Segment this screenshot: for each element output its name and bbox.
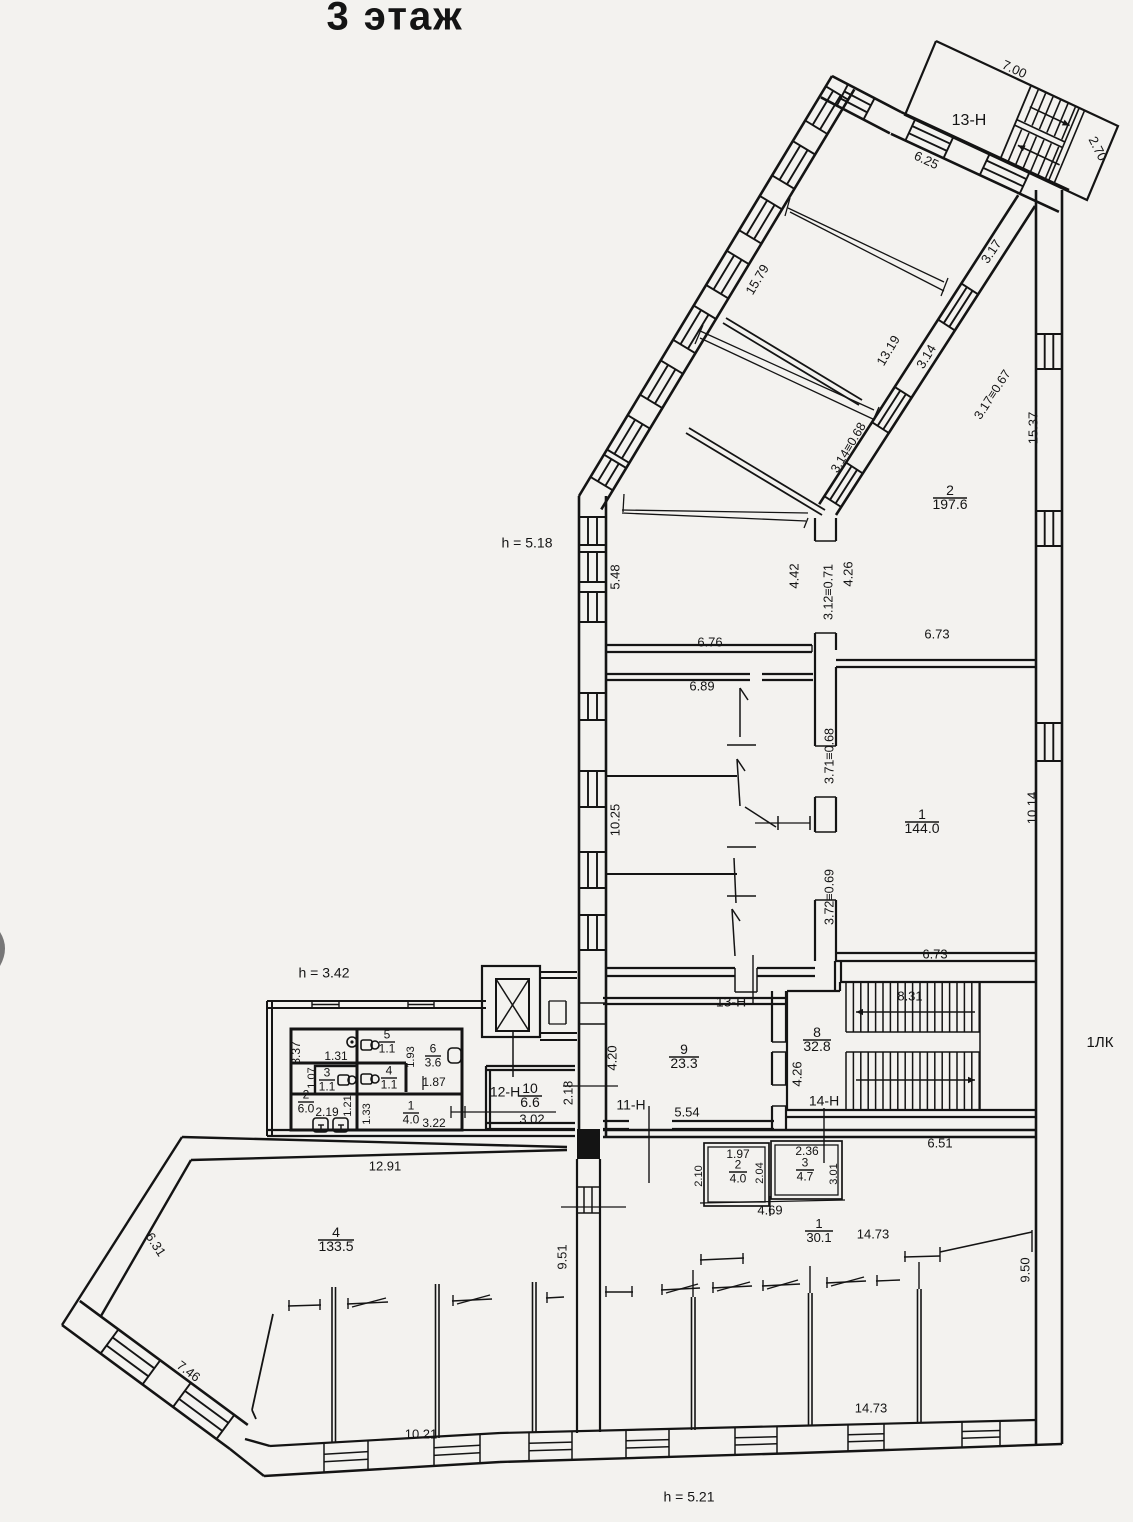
svg-text:4.0: 4.0 [403,1113,420,1127]
svg-text:10.21: 10.21 [405,1426,438,1441]
svg-text:4.20: 4.20 [604,1045,619,1070]
svg-text:12.91: 12.91 [369,1158,402,1173]
svg-text:12-Н: 12-Н [490,1084,520,1100]
svg-text:2.19: 2.19 [315,1105,339,1119]
svg-text:133.5: 133.5 [318,1238,353,1254]
svg-text:1.07: 1.07 [306,1067,318,1088]
svg-text:3.17≡0.67: 3.17≡0.67 [971,367,1013,422]
svg-text:3.14≡0.68: 3.14≡0.68 [828,420,869,475]
svg-text:4.7: 4.7 [797,1170,814,1184]
svg-text:1.87: 1.87 [422,1075,446,1089]
svg-text:2: 2 [303,1088,310,1102]
svg-text:6.89: 6.89 [689,678,714,693]
svg-text:13-Н: 13-Н [952,112,987,129]
svg-text:6.76: 6.76 [697,634,722,649]
svg-text:11-Н: 11-Н [616,1097,645,1113]
svg-text:1.33: 1.33 [361,1103,373,1124]
svg-text:3.72≡0.69: 3.72≡0.69 [822,869,836,925]
svg-text:13.19: 13.19 [873,333,903,369]
svg-text:3.71≡0.68: 3.71≡0.68 [822,728,836,784]
svg-text:1ЛК: 1ЛК [1087,1034,1114,1051]
svg-text:6.0: 6.0 [298,1102,315,1116]
svg-text:2.70: 2.70 [1086,134,1111,163]
svg-text:5.48: 5.48 [607,564,622,589]
svg-text:5: 5 [384,1028,391,1042]
svg-text:3.01: 3.01 [828,1163,840,1184]
svg-text:h = 5.18: h = 5.18 [502,535,553,551]
svg-text:3.37: 3.37 [289,1041,303,1065]
svg-text:197.6: 197.6 [932,496,967,512]
svg-text:3.02: 3.02 [519,1111,544,1126]
svg-text:1: 1 [815,1216,822,1231]
svg-text:30.1: 30.1 [806,1230,831,1245]
svg-text:32.8: 32.8 [803,1038,830,1054]
svg-text:2.18: 2.18 [561,1081,575,1105]
svg-text:1.21: 1.21 [342,1095,354,1116]
svg-text:1: 1 [408,1099,415,1113]
svg-text:3.14: 3.14 [913,342,939,371]
svg-text:6.31: 6.31 [143,1230,169,1259]
svg-text:5.54: 5.54 [674,1104,699,1119]
svg-text:14-Н: 14-Н [809,1093,839,1109]
svg-text:1.1: 1.1 [379,1042,396,1056]
svg-text:23.3: 23.3 [670,1055,697,1071]
svg-text:13-Н: 13-Н [716,994,746,1010]
svg-text:3.22: 3.22 [422,1116,446,1130]
svg-text:3: 3 [324,1066,331,1080]
svg-text:h = 3.42: h = 3.42 [299,965,350,981]
svg-text:6: 6 [430,1042,437,1056]
svg-text:6.51: 6.51 [927,1135,952,1150]
svg-text:3.12≡0.71: 3.12≡0.71 [821,564,835,620]
svg-text:14.73: 14.73 [857,1226,890,1241]
svg-text:6.73: 6.73 [924,626,949,641]
svg-text:3: 3 [802,1156,809,1170]
svg-text:4.69: 4.69 [757,1202,782,1217]
svg-text:15.37: 15.37 [1025,412,1040,445]
svg-text:10.25: 10.25 [607,804,622,837]
svg-text:h = 5.21: h = 5.21 [664,1489,715,1505]
svg-text:2.04: 2.04 [754,1162,766,1183]
svg-text:2: 2 [735,1158,742,1172]
svg-text:4.26: 4.26 [840,561,855,586]
svg-text:9.50: 9.50 [1017,1257,1032,1282]
svg-text:10.14: 10.14 [1024,792,1039,825]
svg-text:3 этаж: 3 этаж [326,0,463,39]
svg-text:4: 4 [386,1064,393,1078]
svg-text:1.31: 1.31 [324,1049,348,1063]
svg-text:6.25: 6.25 [912,148,941,172]
svg-text:4.26: 4.26 [789,1061,804,1086]
svg-text:144.0: 144.0 [904,820,939,836]
svg-text:1.93: 1.93 [405,1046,417,1067]
svg-text:2.10: 2.10 [693,1165,705,1186]
svg-text:8.31: 8.31 [897,988,922,1003]
svg-text:1.1: 1.1 [319,1080,336,1094]
svg-text:4.42: 4.42 [786,563,801,588]
svg-text:9.51: 9.51 [554,1244,569,1269]
svg-text:4.0: 4.0 [730,1172,747,1186]
svg-text:6.73: 6.73 [922,946,947,961]
svg-text:3.6: 3.6 [425,1056,442,1070]
svg-text:6.6: 6.6 [520,1094,540,1110]
svg-text:1.1: 1.1 [381,1078,398,1092]
svg-text:14.73: 14.73 [855,1400,888,1415]
